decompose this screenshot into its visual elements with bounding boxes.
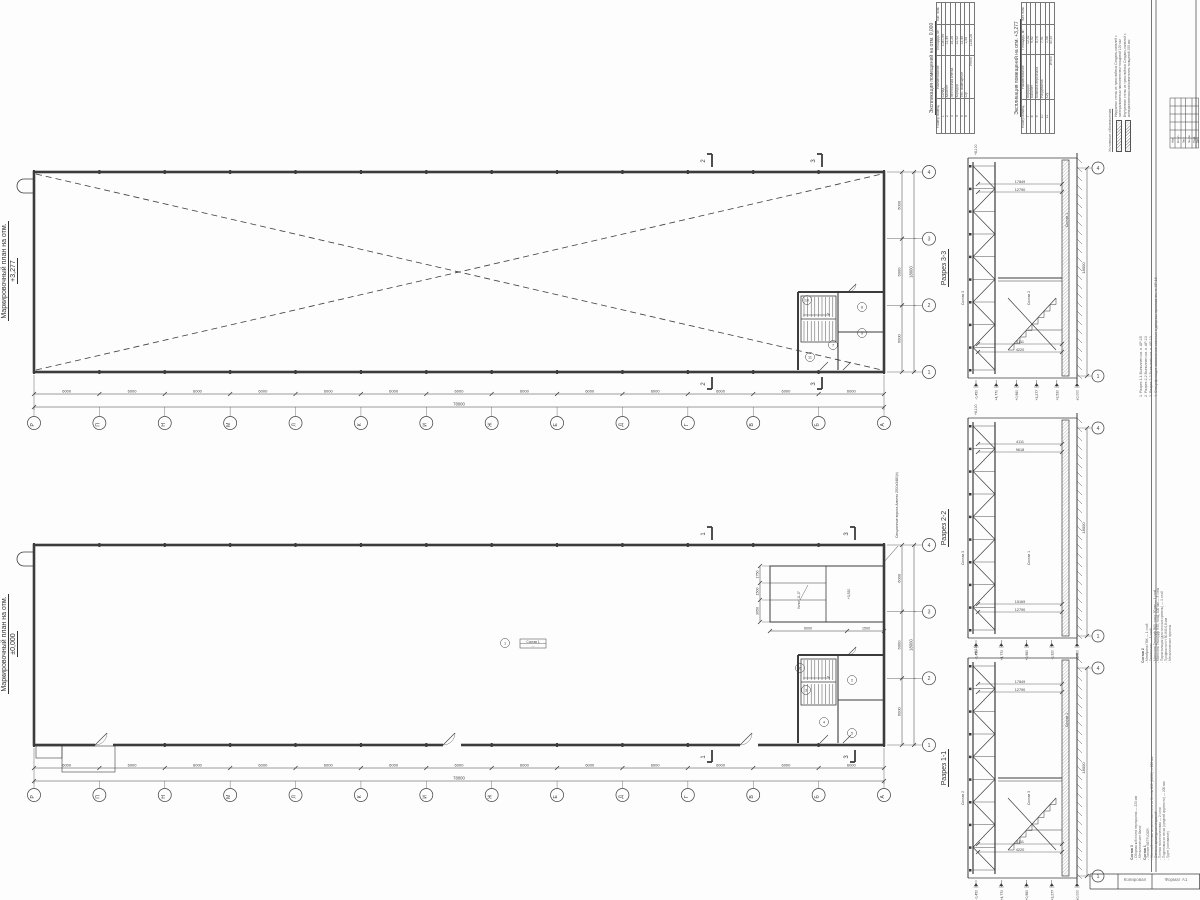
dim-label-rotated: И xyxy=(422,795,428,799)
canopy xyxy=(36,746,62,758)
level-mark xyxy=(1075,883,1079,886)
purlin xyxy=(969,369,972,372)
legend-caption: Внутренние стены из трехслойных Сэндвич-… xyxy=(1124,12,1132,117)
cad-shape xyxy=(1077,499,1082,504)
dim-label: 6000 xyxy=(781,389,791,394)
schedule-total-row: Итого40,67 xyxy=(1050,3,1055,134)
purlin xyxy=(969,516,972,519)
dim-label: 2 xyxy=(928,303,931,309)
dim-label: 4220 xyxy=(1016,348,1024,352)
column-tick xyxy=(491,743,493,747)
level-mark xyxy=(1025,643,1029,646)
column-tick xyxy=(229,743,231,747)
column-tick xyxy=(687,743,689,747)
column-tick xyxy=(33,370,35,374)
dim-label-rotated: 6000 xyxy=(897,573,902,583)
column-tick xyxy=(425,743,427,747)
cad-shape xyxy=(1077,356,1082,361)
cad-shape xyxy=(1077,712,1082,717)
column-tick xyxy=(621,543,623,547)
cad-shape xyxy=(843,362,851,370)
column-tick xyxy=(98,170,100,174)
dim-label-rotated: 18000 xyxy=(909,266,914,278)
cad-shape xyxy=(1077,847,1082,852)
column-tick xyxy=(98,543,100,547)
cad-shape xyxy=(1077,275,1082,280)
dim-label-rotated: 1500 xyxy=(756,588,760,596)
dim-label-rotated: 2 xyxy=(701,382,707,386)
dim-label-rotated: 6000 xyxy=(897,200,902,210)
dim-label-rotated: П xyxy=(95,795,101,799)
column-tick xyxy=(295,543,297,547)
footer-format-label: Формат А1 xyxy=(1152,877,1200,882)
room-schedule-table-0: Номер помещ.НаименованиеПлощадь, м²Кат. … xyxy=(936,2,975,134)
dim-label-rotated: 1 xyxy=(701,755,707,759)
column-tick xyxy=(360,170,362,174)
grid-bubble xyxy=(878,789,891,802)
purlin xyxy=(969,801,972,804)
dim-label: 6000 xyxy=(258,763,268,768)
column-tick xyxy=(33,170,35,174)
cad-shape xyxy=(1077,589,1082,594)
legend-item: Наружные стены из трехслойных Сэндвич-па… xyxy=(1115,12,1123,152)
dim-label: 6000 xyxy=(128,763,138,768)
level-mark xyxy=(1050,643,1054,646)
column-tick xyxy=(164,170,166,174)
cad-shape xyxy=(1077,544,1082,549)
cad-shape xyxy=(1077,311,1082,316)
cad-shape xyxy=(1077,775,1082,780)
grid-bubble xyxy=(28,417,41,430)
cad-shape xyxy=(1077,320,1082,325)
purlin xyxy=(969,629,972,632)
cad-shape xyxy=(1077,194,1082,199)
cad-shape xyxy=(1077,329,1082,334)
plan-top-level: +3,277 xyxy=(10,258,18,284)
grid-bubble xyxy=(878,417,891,430)
level-mark xyxy=(999,883,1003,886)
dim-label-rotated: 18000 xyxy=(1081,262,1086,274)
dim-label: 17849 xyxy=(1015,180,1026,184)
dim-label-rotated: ±0,000 xyxy=(1076,890,1080,900)
column-tick xyxy=(229,543,231,547)
column-tick xyxy=(164,543,166,547)
room-schedule-0: Экспликация помещений на отм. 0,000 Номе… xyxy=(929,2,1021,134)
dim-label-rotated: 2 xyxy=(701,159,707,163)
column-tick xyxy=(556,370,558,374)
dim-label: 17849 xyxy=(1015,680,1026,684)
grid-bubble xyxy=(616,417,629,430)
dim-label: 6000 xyxy=(455,389,465,394)
dim-label-rotated: Состав 2 xyxy=(961,791,965,805)
level-mark xyxy=(974,883,978,886)
grid-bubble xyxy=(289,789,302,802)
dim-label-rotated: Состав 3 xyxy=(961,551,965,565)
column-tick xyxy=(818,543,820,547)
column-tick xyxy=(425,370,427,374)
level-mark xyxy=(974,383,978,386)
cad-shape xyxy=(1077,598,1082,603)
dim-label: 6000 xyxy=(258,389,268,394)
column-tick xyxy=(556,543,558,547)
dim-label-rotated: 6000 xyxy=(897,333,902,343)
dim-label: 4 xyxy=(928,170,931,176)
cad-shape xyxy=(1077,634,1082,639)
door-gap xyxy=(95,743,113,748)
room-schedule-1-title: Экспликация помещений на отм. +3,277 xyxy=(1014,2,1020,134)
cad-shape xyxy=(1077,739,1082,744)
truss-web xyxy=(973,166,995,370)
column-tick xyxy=(621,370,623,374)
dim-label-rotated: 18000 xyxy=(1081,522,1086,534)
cad-shape xyxy=(1077,580,1082,585)
column-tick xyxy=(883,170,885,174)
cad-shape xyxy=(1077,793,1082,798)
dim-label: 6000 xyxy=(193,763,203,768)
dim-label-rotated: Н xyxy=(161,795,167,799)
dim-label-rotated: Состав 3 xyxy=(1027,791,1031,805)
dim-label-rotated: +0,980 xyxy=(1025,650,1029,661)
purlin xyxy=(969,448,972,451)
dim-label: 8 xyxy=(861,306,863,310)
dim-label: 6000 xyxy=(193,389,203,394)
cad-shape xyxy=(1077,748,1082,753)
dim-label: 6000 xyxy=(847,763,857,768)
dim-label-rotated: 6000 xyxy=(897,640,902,650)
dim-label-rotated: -0,450 xyxy=(975,890,979,900)
dim-label: 6000 xyxy=(781,763,791,768)
gate-fixture xyxy=(17,552,34,566)
dim-label-rotated: М xyxy=(226,795,232,799)
cad-shape xyxy=(1077,445,1082,450)
column-tick xyxy=(491,543,493,547)
grid-bubble xyxy=(747,789,760,802)
dim-label-rotated: Е xyxy=(553,422,559,426)
section-2-2-label: Разрез 2-2 xyxy=(941,493,951,563)
cad-shape xyxy=(1077,490,1082,495)
dim-label-rotated: Н xyxy=(161,423,167,427)
composition-roof: Состав 2- Мембрана ПВХ — 1 слой- Геотекс… xyxy=(1141,493,1169,663)
grid-bubble xyxy=(681,417,694,430)
column-tick xyxy=(229,370,231,374)
legend: Условные обозначения Наружные стены из т… xyxy=(1108,12,1164,152)
note-line: 4. Спецификация заполнения оконных и две… xyxy=(1154,221,1159,397)
purlin xyxy=(969,756,972,759)
grid-bubble xyxy=(681,789,694,802)
dim-label-rotated: 1 xyxy=(701,532,707,536)
dim-label-rotated: Дата xyxy=(1195,137,1199,143)
dim-label-rotated: Р xyxy=(30,794,36,798)
dim-label: 6000 xyxy=(324,763,334,768)
dim-label: 4220 xyxy=(1016,848,1024,852)
room-schedule-table-1: Номер помещ.НаименованиеПлощадь, м²Кат. … xyxy=(1021,2,1055,134)
purlin xyxy=(969,256,972,259)
notes-block: 1. Разрез 1-1 Выполнен см. л. АР-152. Ра… xyxy=(1139,221,1165,397)
dim-label-rotated: Состав 1 xyxy=(1027,551,1031,565)
dim-label: 6000 xyxy=(716,763,726,768)
cad-shape xyxy=(1077,293,1082,298)
cad-shape xyxy=(1077,374,1082,379)
purlin xyxy=(969,538,972,541)
dim-label-rotated: В xyxy=(749,422,755,426)
section-3-3-label: Разрез 3-3 xyxy=(941,233,951,303)
dim-label: 6000 xyxy=(716,389,726,394)
cad-shape xyxy=(1077,347,1082,352)
dim-label-rotated: Уклон 11,3° xyxy=(797,590,801,609)
grid-bubble xyxy=(551,789,564,802)
cad-shape xyxy=(1077,481,1082,486)
dim-label-rotated: Е xyxy=(553,794,559,798)
dim-label: 1 xyxy=(1097,374,1100,380)
dim-label-rotated: Л xyxy=(292,423,298,426)
cad-shape xyxy=(1077,517,1082,522)
dim-label-rotated: Лист xyxy=(1181,137,1185,143)
purlin xyxy=(969,324,972,327)
dim-label-rotated: Д xyxy=(618,794,624,798)
cad-shape xyxy=(884,546,898,562)
grid-bubble xyxy=(354,417,367,430)
dim-label-rotated: Состав 1 xyxy=(1065,713,1069,727)
column-tick xyxy=(425,170,427,174)
cad-shape xyxy=(1077,553,1082,558)
gate-fixture xyxy=(17,179,34,193)
section-2-2-text: Разрез 2-2 xyxy=(941,509,949,547)
dim-label-rotated: 3 xyxy=(844,755,850,759)
cad-shape xyxy=(1077,703,1082,708)
dim-label-rotated: Состав 2 xyxy=(1027,291,1031,305)
cad-shape xyxy=(1077,436,1082,441)
column-tick xyxy=(295,743,297,747)
purlin xyxy=(969,561,972,564)
cad-shape xyxy=(1077,685,1082,690)
cad-shape xyxy=(1077,158,1082,163)
cad-shape xyxy=(1077,616,1082,621)
cad-shape xyxy=(1077,607,1082,612)
room-schedule-0-title: Экспликация помещений на отм. 0,000 xyxy=(929,2,935,134)
cad-shape xyxy=(1077,284,1082,289)
cad-shape xyxy=(1077,212,1082,217)
column-tick xyxy=(360,370,362,374)
cad-shape xyxy=(820,735,828,743)
column-tick xyxy=(687,170,689,174)
column-tick xyxy=(556,170,558,174)
dim-label-rotated: Б xyxy=(815,794,821,798)
cad-shape xyxy=(843,735,851,743)
grid-bubble xyxy=(616,789,629,802)
cad-shape xyxy=(1077,472,1082,477)
dim-label-rotated: 6000 xyxy=(897,267,902,277)
column-tick xyxy=(164,743,166,747)
grid-bubble xyxy=(354,789,367,802)
door-gap xyxy=(740,743,758,748)
section-1-1-label: Разрез 1-1 xyxy=(941,733,951,803)
cad-shape xyxy=(1077,676,1082,681)
cad-shape xyxy=(1077,257,1082,262)
dim-label-rotated: К xyxy=(357,423,363,426)
column-tick xyxy=(687,370,689,374)
column-tick xyxy=(818,370,820,374)
purlin xyxy=(969,869,972,872)
cad-shape xyxy=(1077,820,1082,825)
level-mark xyxy=(1035,383,1039,386)
dim-label-rotated: Секционные ворота Алютех 2500х3480(h) xyxy=(895,472,899,538)
dim-label-rotated: +3,277 xyxy=(1035,390,1039,401)
column-tick xyxy=(295,370,297,374)
column-tick xyxy=(752,543,754,547)
dim-label: 6000 xyxy=(520,763,530,768)
dim-label-rotated: ±0,000 xyxy=(1076,390,1080,400)
grid-bubble xyxy=(289,417,302,430)
section-3-3-text: Разрез 3-3 xyxy=(941,249,949,287)
cad-shape xyxy=(1077,221,1082,226)
purlin xyxy=(969,165,972,168)
footer-copied-label: Копировал xyxy=(1118,877,1152,882)
dim-label-rotated: +0,980 xyxy=(1015,390,1019,401)
dim-label: 12790 xyxy=(1015,608,1026,612)
purlin xyxy=(969,688,972,691)
dim-label-rotated: Ж xyxy=(488,794,494,799)
dim-label: 4 xyxy=(928,543,931,549)
dim-label-rotated: +0,980 xyxy=(1025,890,1029,900)
dim-label: 2 xyxy=(928,676,931,682)
dim-label: 4 xyxy=(823,721,825,725)
grid-bubble xyxy=(812,417,825,430)
dim-label: 6000 xyxy=(128,389,138,394)
cad-shape xyxy=(800,585,808,600)
column-tick xyxy=(883,543,885,547)
purlin xyxy=(969,493,972,496)
dim-label: 6000 xyxy=(585,389,595,394)
cad-shape xyxy=(1077,571,1082,576)
dim-label-rotated: Ж xyxy=(488,422,494,427)
column-tick xyxy=(752,170,754,174)
dim-label-rotated: Г xyxy=(684,795,690,798)
dim-label: 78000 xyxy=(453,402,465,407)
level-mark xyxy=(1075,383,1079,386)
dim-label-rotated: +8,100 xyxy=(974,644,978,655)
column-tick xyxy=(883,370,885,374)
cad-linework: 6000600060006000600060006000600060006000… xyxy=(0,0,1200,900)
dim-label: 1 xyxy=(928,370,931,376)
t1-title: Экспликация помещений на отм. xyxy=(1014,38,1020,115)
grid-bubble xyxy=(812,789,825,802)
dim-label: Состав 1 xyxy=(526,640,539,644)
cad-shape xyxy=(1077,248,1082,253)
cad-shape xyxy=(1077,185,1082,190)
column-tick xyxy=(818,743,820,747)
purlin xyxy=(969,778,972,781)
purlin xyxy=(969,846,972,849)
purlin xyxy=(969,665,972,668)
column-tick xyxy=(818,170,820,174)
dim-label: 9618 xyxy=(1016,448,1024,452)
dim-label: 6000 xyxy=(389,763,399,768)
dim-label-rotated: +8,100 xyxy=(974,404,978,415)
dim-label: 10 xyxy=(805,299,809,303)
dim-label-rotated: 18000 xyxy=(909,639,914,651)
column-tick xyxy=(229,170,231,174)
cad-shape xyxy=(1077,463,1082,468)
dim-label: 4111 xyxy=(1016,440,1024,444)
purlin xyxy=(969,710,972,713)
dim-label-rotated: 3 xyxy=(844,532,850,536)
dim-label-rotated: М xyxy=(226,423,232,427)
cad-shape xyxy=(1077,802,1082,807)
dim-label: 9 xyxy=(861,332,863,336)
plan-bottom-title: Маркировочный план на отм. ±0,000 xyxy=(1,569,23,719)
cad-shape xyxy=(1077,176,1082,181)
plan-bottom-level: ±0,000 xyxy=(10,631,18,656)
dim-label-rotated: +3,530 xyxy=(1055,390,1059,401)
column-tick xyxy=(883,743,885,747)
cad-shape xyxy=(1077,508,1082,513)
drawing-sheet: 6000600060006000600060006000600060006000… xyxy=(0,0,1200,900)
dim-label-rotated: 3050 xyxy=(756,607,760,615)
column-tick xyxy=(621,170,623,174)
dim-label: 4 xyxy=(1097,166,1100,172)
column-tick xyxy=(491,170,493,174)
column-tick xyxy=(98,370,100,374)
column-tick xyxy=(491,370,493,374)
level-mark xyxy=(994,383,998,386)
t0-title: Экспликация помещений на отм. xyxy=(929,37,935,114)
dim-label-rotated: +8,100 xyxy=(974,144,978,155)
dim-label: 78000 xyxy=(453,776,465,781)
dim-label: 5 xyxy=(851,732,853,736)
dim-label-rotated: Л xyxy=(292,795,298,798)
purlin xyxy=(969,188,972,191)
cad-shape xyxy=(1077,625,1082,630)
cad-shape xyxy=(827,676,830,678)
column-tick xyxy=(425,543,427,547)
dim-label: 3 xyxy=(805,689,807,693)
column-tick xyxy=(752,370,754,374)
slab-hatch xyxy=(1062,160,1069,376)
grid-bubble xyxy=(551,417,564,430)
purlin xyxy=(969,425,972,428)
dim-label-rotated: № док. xyxy=(1188,134,1191,143)
column-tick xyxy=(164,370,166,374)
dim-label-rotated: А xyxy=(880,422,886,426)
dim-label: 1 xyxy=(928,743,931,749)
cad-shape xyxy=(1077,730,1082,735)
legend-items: Наружные стены из трехслойных Сэндвич-па… xyxy=(1115,12,1132,152)
dim-label-rotated: А xyxy=(880,794,886,798)
schedule-total-row: Итого1138,28 xyxy=(970,3,975,134)
grid-bubble xyxy=(28,789,41,802)
cad-shape xyxy=(1077,784,1082,789)
cad-shape xyxy=(1077,865,1082,870)
level-mark xyxy=(999,643,1003,646)
plan-top-title-text: Маркировочный план на отм. xyxy=(1,221,9,320)
dim-label: 7 xyxy=(832,344,834,348)
room-schedule-1: Экспликация помещений на отм. +3,277 Ном… xyxy=(1014,2,1106,134)
slab-hatch xyxy=(1062,660,1069,876)
dim-label-rotated: И xyxy=(422,423,428,427)
purlin xyxy=(969,233,972,236)
dim-label-rotated: +4,770 xyxy=(1000,650,1004,661)
plan-top-title: Маркировочный план на отм. +3,277 xyxy=(1,196,23,346)
dim-label: 6000 xyxy=(651,389,661,394)
cad-shape xyxy=(1077,757,1082,762)
dim-label: 15169 xyxy=(1015,600,1026,604)
cad-shape xyxy=(1077,535,1082,540)
dim-label-rotated: 18000 xyxy=(1081,762,1086,774)
section-1-1-text: Разрез 1-1 xyxy=(941,749,949,787)
cad-shape xyxy=(1077,874,1082,879)
legend-item: Внутренние стены из трехслойных Сэндвич-… xyxy=(1124,12,1132,152)
dim-label: 4 xyxy=(1097,666,1100,672)
